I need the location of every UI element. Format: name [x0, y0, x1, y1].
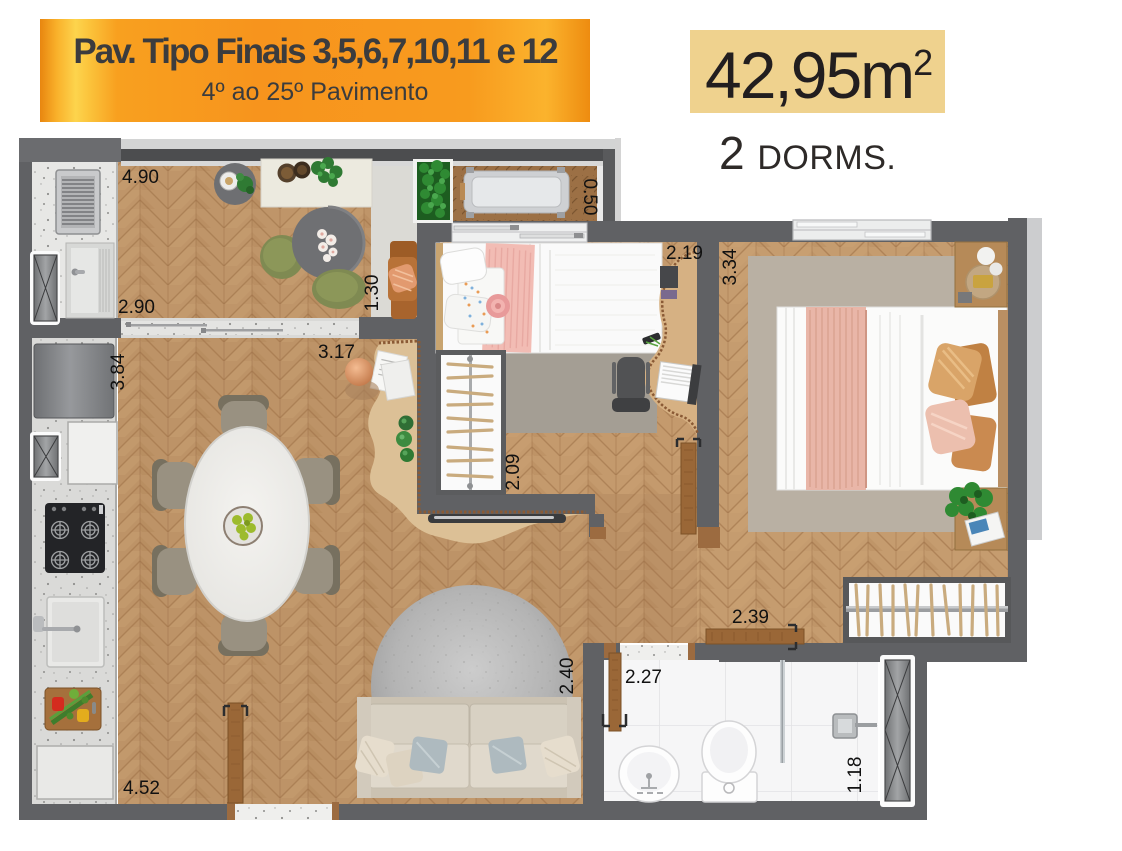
svg-text:4.52: 4.52	[123, 778, 160, 799]
svg-text:2.90: 2.90	[118, 297, 155, 318]
svg-text:2.09: 2.09	[503, 454, 524, 491]
svg-text:3.17: 3.17	[318, 342, 355, 363]
svg-text:1.18: 1.18	[845, 757, 866, 794]
svg-text:1.30: 1.30	[362, 275, 383, 312]
svg-text:2.19: 2.19	[666, 243, 703, 264]
svg-text:3.84: 3.84	[108, 353, 129, 390]
svg-text:2.39: 2.39	[732, 607, 769, 628]
svg-text:2.27: 2.27	[625, 667, 662, 688]
svg-text:3.34: 3.34	[720, 248, 741, 285]
svg-text:4.90: 4.90	[122, 167, 159, 188]
svg-text:0.50: 0.50	[579, 179, 600, 216]
svg-text:2.40: 2.40	[557, 658, 578, 695]
